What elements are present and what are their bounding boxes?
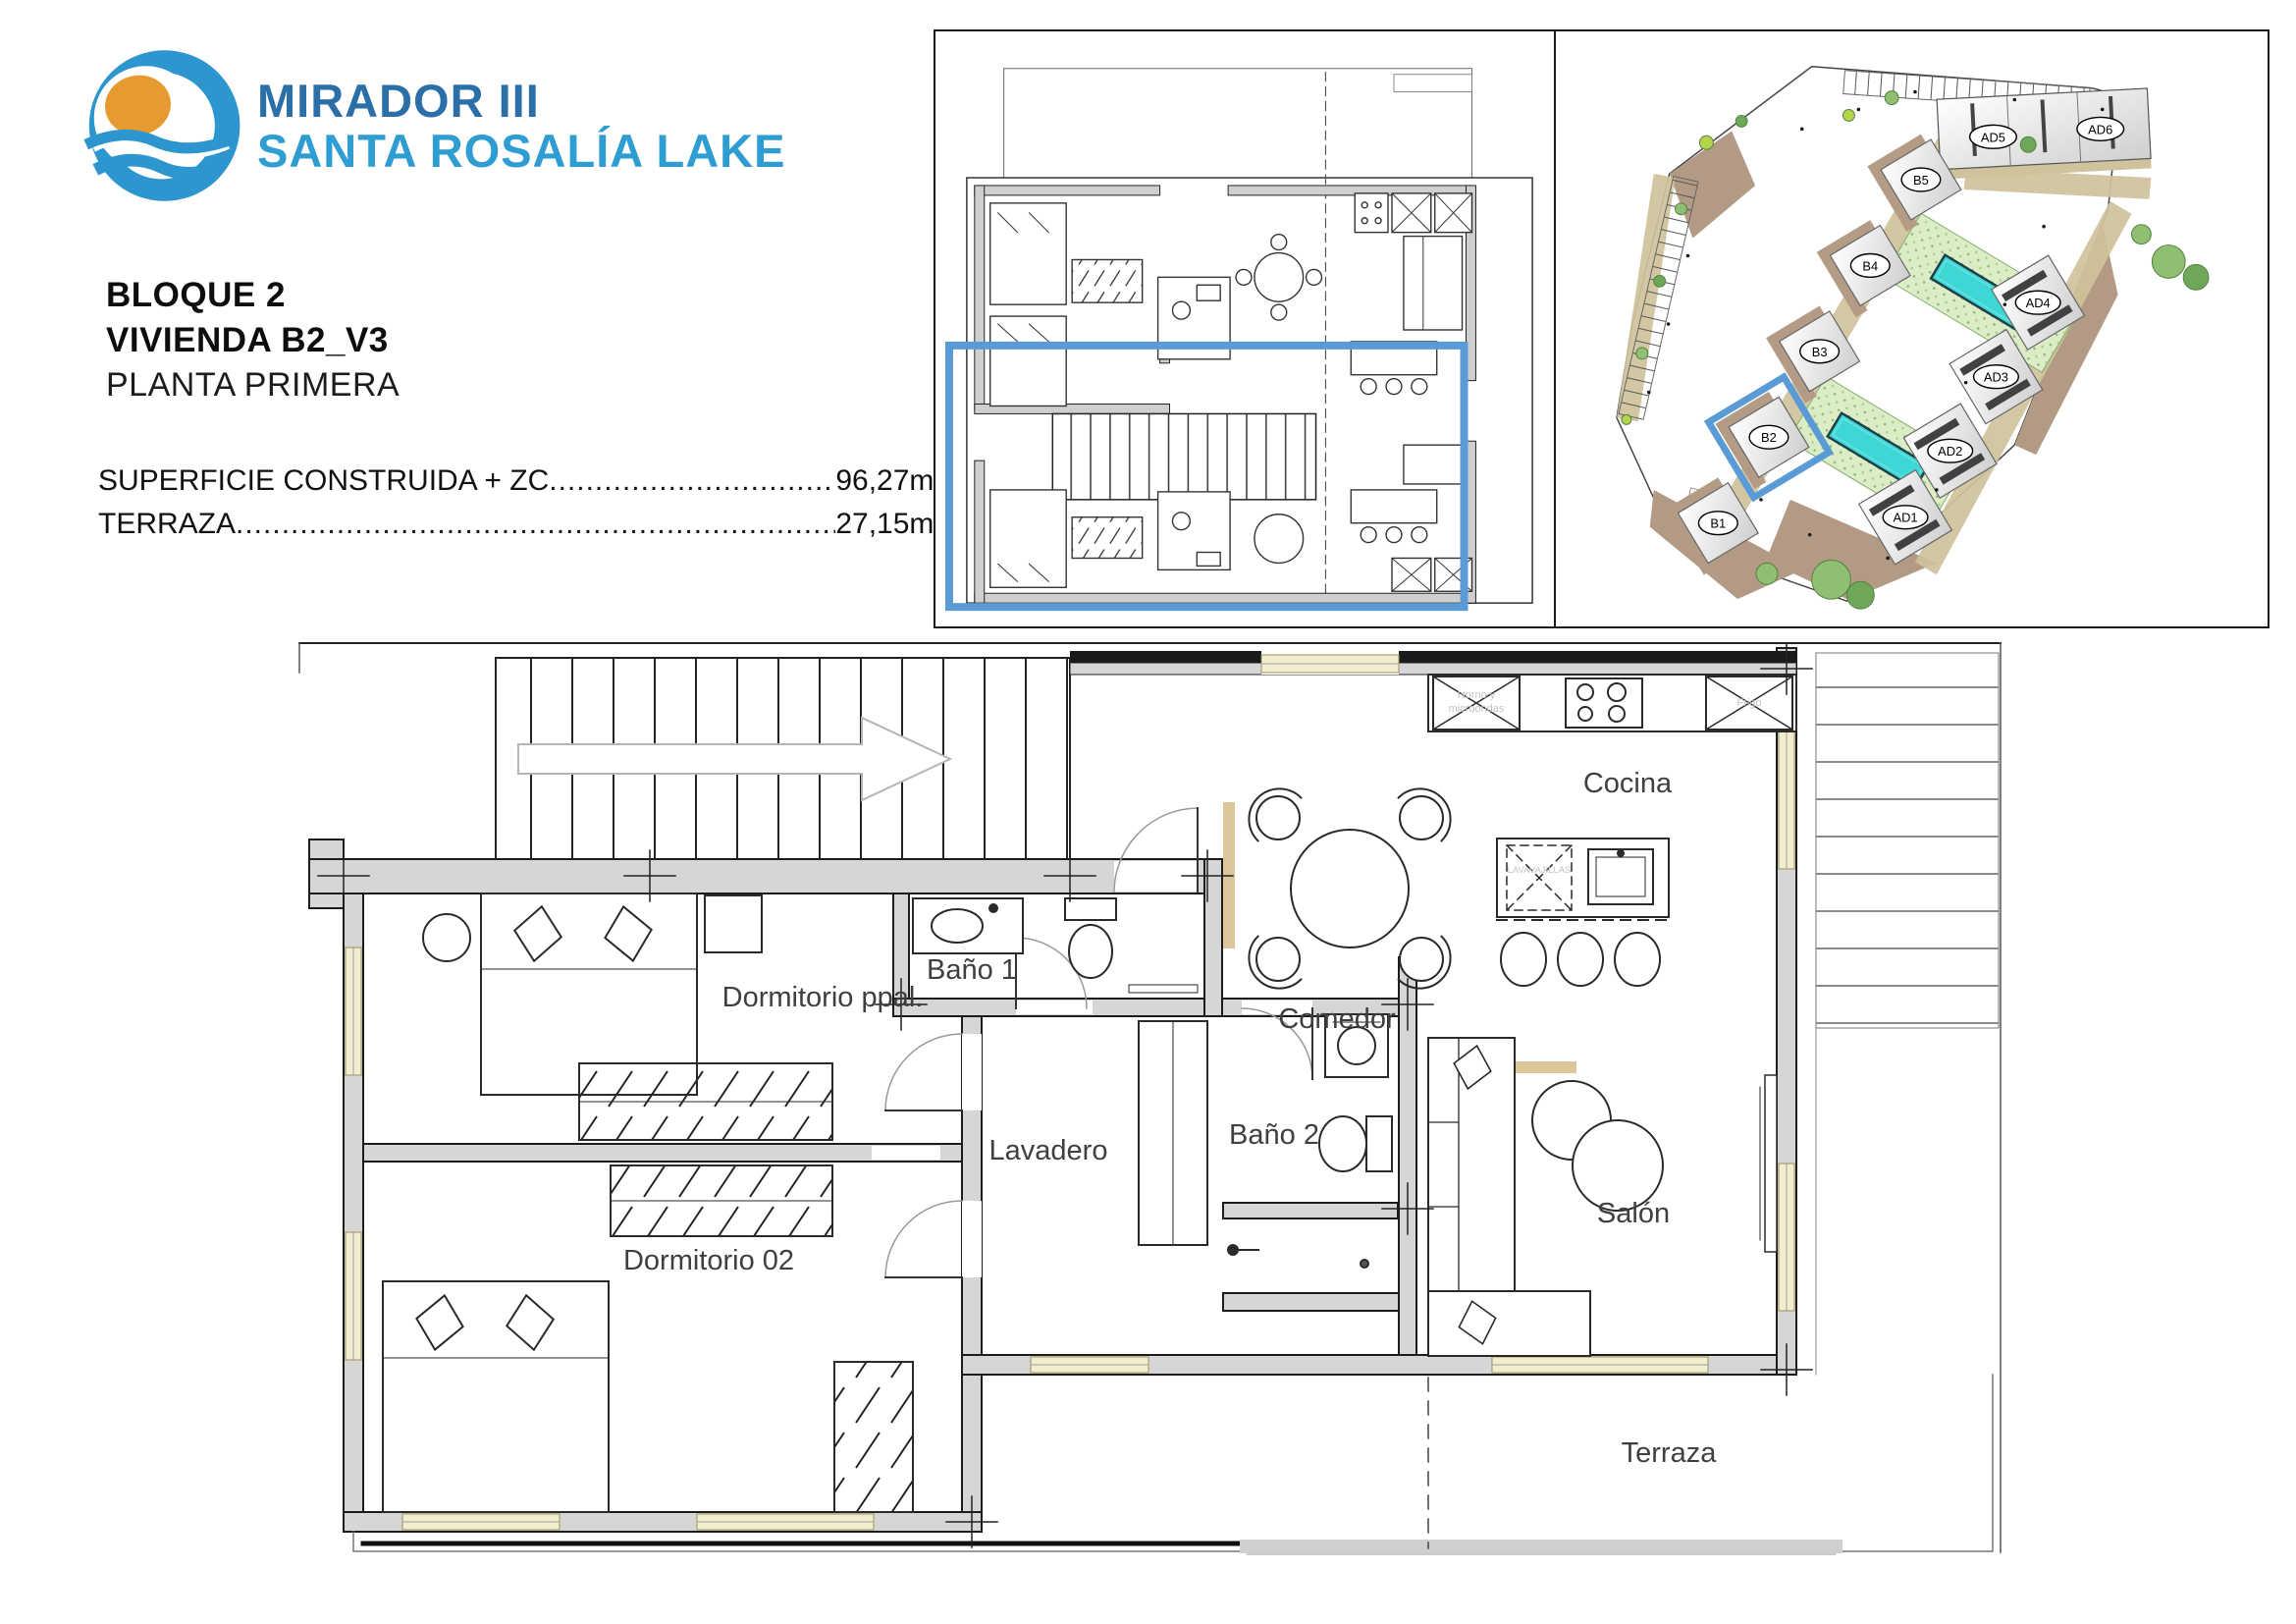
side-terrace-slats xyxy=(1816,653,1999,1375)
brand-text: MIRADOR III SANTA ROSALÍA LAKE xyxy=(257,77,785,177)
area-summary: SUPERFICIE CONSTRUIDA + ZC .............… xyxy=(98,460,944,545)
stairs xyxy=(496,658,1070,859)
building-label-ad1: AD1 xyxy=(1893,511,1917,525)
unit-title: VIVIENDA B2_V3 xyxy=(106,318,400,363)
kitchen-island xyxy=(1497,839,1669,986)
room-label-terrace: Terraza xyxy=(1622,1437,1718,1469)
key-plan-drawing xyxy=(949,69,1532,607)
floor-plan-drawing: Horno y microondas Frigo LAVAVAJILLAS Ba… xyxy=(299,643,2001,1554)
room-label-dining: Comedor xyxy=(1278,1003,1396,1035)
oven-label2: microondas xyxy=(1449,703,1505,715)
dishwasher-label: LAVAVAJILLAS xyxy=(1508,865,1572,876)
room-label-bath2: Baño 2 xyxy=(1229,1119,1319,1151)
building-label-b4: B4 xyxy=(1862,258,1878,273)
room-label-bedroom2: Dormitorio 02 xyxy=(623,1245,794,1276)
room-label-kitchen: Cocina xyxy=(1583,768,1673,799)
building-label-ad3: AD3 xyxy=(1984,370,2008,385)
area-value: 27,15m2 xyxy=(835,503,944,546)
building-label-b3: B3 xyxy=(1812,345,1828,359)
leader-dots: ........................................… xyxy=(236,503,835,546)
room-label-living: Salón xyxy=(1597,1198,1670,1229)
block-title: BLOQUE 2 xyxy=(106,273,400,318)
fridge-label: Frigo xyxy=(1736,697,1761,709)
brand-subtitle: SANTA ROSALÍA LAKE xyxy=(257,127,785,177)
bedroom2-furniture xyxy=(383,1165,913,1512)
brand-title: MIRADOR III xyxy=(257,77,785,127)
building-label-b1: B1 xyxy=(1710,516,1726,531)
building-label-ad5: AD5 xyxy=(1981,130,2005,144)
building-label-b5: B5 xyxy=(1913,173,1929,188)
laundry-cupboard xyxy=(1139,1021,1207,1245)
master-bedroom-furniture xyxy=(423,893,832,1140)
area-row-built: SUPERFICIE CONSTRUIDA + ZC .............… xyxy=(98,460,944,503)
room-label-laundry: Lavadero xyxy=(989,1135,1108,1166)
site-plan: B1 B2 B3 B4 B5 AD1 AD2 AD3 AD4 AD5 AD6 xyxy=(1556,29,2269,628)
key-plan xyxy=(934,29,1556,628)
building-label-ad2: AD2 xyxy=(1938,444,1962,459)
room-label-master-bedroom: Dormitorio ppal. xyxy=(722,982,924,1013)
building-label-b2: B2 xyxy=(1761,430,1777,445)
site-plan-drawing: B1 B2 B3 B4 B5 AD1 AD2 AD3 AD4 AD5 AD6 xyxy=(1617,67,2209,609)
floor-title: PLANTA PRIMERA xyxy=(106,363,400,407)
area-value: 96,27m2 xyxy=(835,460,944,503)
area-label: TERRAZA xyxy=(98,503,236,546)
brand-logo xyxy=(80,47,242,204)
sheet-titles: BLOQUE 2 VIVIENDA B2_V3 PLANTA PRIMERA xyxy=(106,273,400,407)
area-label: SUPERFICIE CONSTRUIDA + ZC xyxy=(98,460,549,503)
floor-plan: Horno y microondas Frigo LAVAVAJILLAS Ba… xyxy=(285,614,2012,1581)
building-label-ad6: AD6 xyxy=(2088,122,2112,136)
oven-label: Horno y xyxy=(1458,689,1496,701)
building-label-ad4: AD4 xyxy=(2026,296,2051,310)
dining-set xyxy=(1237,777,1464,1001)
key-plan-stairs xyxy=(1052,413,1315,499)
living-room-furniture xyxy=(1428,1038,1777,1356)
leader-dots: ........................................… xyxy=(549,460,835,503)
kitchen-top-wall xyxy=(1070,651,1796,663)
sun-waves-logo-icon xyxy=(80,47,242,204)
room-label-bath1: Baño 1 xyxy=(927,954,1017,986)
area-row-terrace: TERRAZA ................................… xyxy=(98,503,944,546)
